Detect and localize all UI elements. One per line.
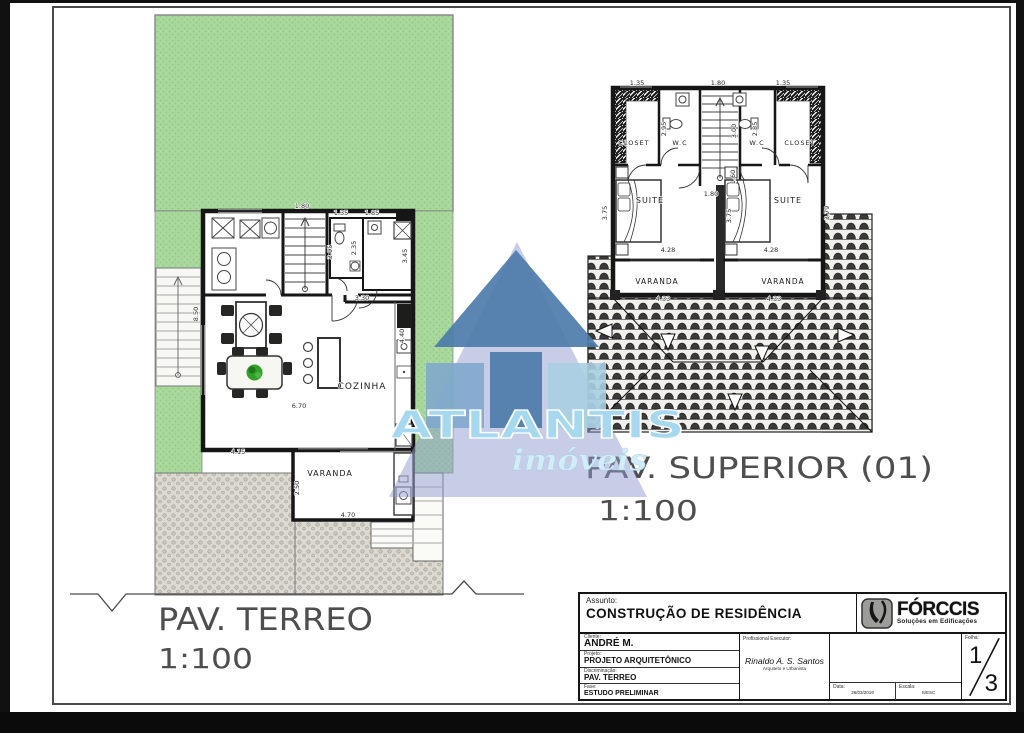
varanda-front-steps	[371, 522, 413, 548]
field-fase: Fase: ESTUDO PRELIMINAR	[580, 684, 739, 700]
svg-text:1.60: 1.60	[729, 170, 737, 184]
room-label-varanda-right: VARANDA	[761, 277, 804, 286]
field-escala: Escala: S/ESC	[896, 683, 961, 700]
field-data: Data: 26/03/2019	[830, 683, 896, 700]
ground-plan-scale: 1:100	[158, 642, 253, 675]
forccis-logo-icon	[861, 598, 893, 629]
room-label-suite-left: SUITE	[636, 196, 664, 205]
svg-text:1.80: 1.80	[704, 190, 718, 198]
svg-text:1.80: 1.80	[711, 79, 725, 87]
svg-text:3.05: 3.05	[326, 245, 334, 259]
title-block-row-subject: Assunto: CONSTRUÇÃO DE RESIDÊNCIA FÓRCCI…	[580, 594, 1005, 634]
svg-text:4.28: 4.28	[661, 246, 675, 254]
watermark-pyramid	[434, 250, 599, 347]
field-discriminacao: Discriminação: PAV. TERREO	[580, 668, 739, 685]
svg-text:2.95: 2.95	[660, 122, 668, 136]
room-label-suite-right: SUITE	[774, 196, 802, 205]
svg-text:3.30: 3.30	[355, 294, 369, 302]
signature-box	[830, 634, 961, 683]
folha-number: 1	[969, 642, 982, 670]
room-label-closet-right: CLOSET	[784, 139, 815, 147]
stone-patio	[155, 473, 295, 595]
field-executor: Profissional Executor: Rinaldo A. S. San…	[740, 634, 830, 700]
svg-text:4.15: 4.15	[231, 448, 245, 456]
main-building	[203, 211, 413, 450]
svg-text:3.75: 3.75	[725, 209, 733, 223]
forccis-logo-name: FÓRCCIS	[897, 601, 979, 618]
drawing-sheet-viewer: COZINHA VARANDA 1.80 3.05 1.35 1.85 2.35…	[0, 0, 1024, 733]
room-label-varanda: VARANDA	[307, 469, 353, 478]
suite-bed-left	[616, 167, 661, 255]
room-label-cozinha: COZINHA	[338, 382, 387, 392]
svg-text:2.85: 2.85	[751, 122, 759, 136]
exterior-side-stairs	[156, 268, 201, 386]
folha-total: 3	[985, 670, 998, 698]
title-block-row-details: Cliente: ANDRÉ M. Projeto: PROJETO ARQUI…	[580, 634, 1005, 700]
svg-text:3.79: 3.79	[823, 206, 831, 220]
watermark-tagline-text: imóveis	[512, 443, 647, 477]
svg-text:2.35: 2.35	[350, 241, 358, 255]
ground-plan-title: PAV. TERREO	[158, 602, 373, 638]
svg-text:1.85: 1.85	[365, 209, 379, 217]
svg-text:8.50: 8.50	[192, 307, 200, 321]
upper-floor-plan: CLOSET W.C W.C CLOSET SUITE SUITE VARAND…	[588, 79, 872, 432]
watermark-brand-text: ATLANTIS	[390, 403, 685, 447]
room-label-wc-right: W.C	[749, 139, 764, 147]
room-label-varanda-left: VARANDA	[635, 277, 678, 286]
plant-centerpiece	[247, 365, 263, 381]
bar-counter	[304, 338, 341, 388]
executor-title: Arquiteto e Urbanista	[743, 666, 826, 671]
forccis-logo-tagline: Soluções em Edificações	[897, 618, 979, 625]
svg-text:1.35: 1.35	[776, 79, 790, 87]
forccis-logo: FÓRCCIS Soluções em Edificações	[857, 594, 1005, 632]
svg-text:4.40: 4.40	[398, 329, 406, 343]
field-projeto: Projeto: PROJETO ARQUITETÔNICO	[580, 651, 739, 668]
svg-text:3.75: 3.75	[601, 206, 609, 220]
svg-text:3.00: 3.00	[730, 124, 738, 138]
svg-text:4.33: 4.33	[767, 295, 781, 303]
ground-floor-plan: COZINHA VARANDA 1.80 3.05 1.35 1.85 2.35…	[70, 15, 524, 611]
room-label-wc-left: W.C	[672, 139, 687, 147]
party-wall	[716, 185, 725, 295]
svg-text:1.80: 1.80	[295, 202, 309, 210]
executor-name: Rinaldo A. S. Santos	[743, 656, 826, 666]
svg-text:4.70: 4.70	[341, 511, 355, 519]
assunto-label: Assunto:	[586, 596, 850, 605]
svg-text:4.28: 4.28	[764, 246, 778, 254]
svg-text:3.45: 3.45	[401, 249, 409, 263]
assunto-value: CONSTRUÇÃO DE RESIDÊNCIA	[586, 606, 850, 621]
svg-text:6.70: 6.70	[292, 402, 306, 410]
svg-text:4.33: 4.33	[656, 295, 670, 303]
title-block: Assunto: CONSTRUÇÃO DE RESIDÊNCIA FÓRCCI…	[578, 592, 1007, 701]
field-folha: Folha: 1 3	[962, 634, 1005, 700]
upper-plan-scale: 1:100	[598, 494, 698, 527]
field-cliente: Cliente: ANDRÉ M.	[580, 634, 739, 651]
room-label-closet-left: CLOSET	[618, 139, 649, 147]
svg-text:1.35: 1.35	[630, 79, 644, 87]
garden-lawn	[155, 15, 453, 211]
svg-text:2.50: 2.50	[293, 481, 301, 495]
svg-text:1.35: 1.35	[334, 209, 348, 217]
